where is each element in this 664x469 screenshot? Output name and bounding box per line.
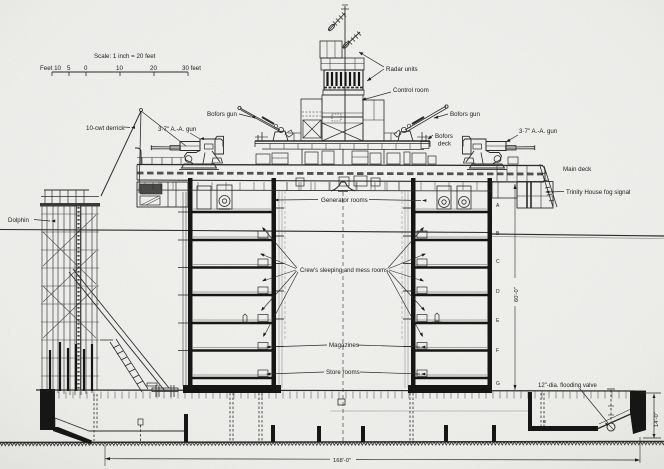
svg-text:Control room: Control room	[393, 87, 429, 94]
svg-text:30 feet: 30 feet	[182, 65, 201, 72]
svg-text:Crew's sleeping and mess rooms: Crew's sleeping and mess rooms	[300, 268, 388, 274]
svg-text:Radar units: Radar units	[386, 66, 418, 73]
svg-text:Bofors gun: Bofors gun	[450, 111, 480, 118]
svg-text:Dolphin: Dolphin	[8, 217, 30, 224]
svg-text:Magazines: Magazines	[329, 342, 359, 349]
svg-text:Scale: 1 inch = 20 feet: Scale: 1 inch = 20 feet	[94, 53, 156, 60]
svg-text:10: 10	[116, 65, 123, 72]
svg-text:14'-0": 14'-0"	[654, 412, 660, 427]
svg-text:12"-dia. flooding valve: 12"-dia. flooding valve	[538, 383, 597, 389]
svg-text:Bofors: Bofors	[435, 133, 453, 140]
svg-text:60'-0": 60'-0"	[514, 287, 520, 302]
svg-text:Main deck: Main deck	[563, 166, 592, 173]
svg-text:Generator rooms: Generator rooms	[321, 197, 368, 204]
svg-text:B: B	[543, 419, 546, 424]
svg-text:3·7" A.-A. gun: 3·7" A.-A. gun	[158, 126, 197, 133]
svg-text:D: D	[496, 289, 500, 295]
svg-text:C: C	[496, 259, 500, 265]
svg-text:G: G	[496, 381, 500, 387]
svg-text:0: 0	[84, 65, 88, 72]
svg-text:10-cwt derrick: 10-cwt derrick	[86, 125, 125, 132]
svg-text:168'-0": 168'-0"	[333, 458, 351, 464]
svg-text:Trinity House fog signal: Trinity House fog signal	[566, 189, 630, 196]
svg-text:3·7" A.-A. gun: 3·7" A.-A. gun	[519, 128, 558, 135]
svg-text:20: 20	[150, 65, 157, 72]
svg-text:5: 5	[67, 65, 71, 72]
svg-text:Store rooms: Store rooms	[326, 369, 360, 376]
svg-text:deck: deck	[438, 141, 452, 148]
svg-text:Bofors gun: Bofors gun	[207, 111, 237, 118]
svg-text:Feet 10: Feet 10	[40, 65, 62, 72]
svg-text:F: F	[496, 348, 499, 354]
